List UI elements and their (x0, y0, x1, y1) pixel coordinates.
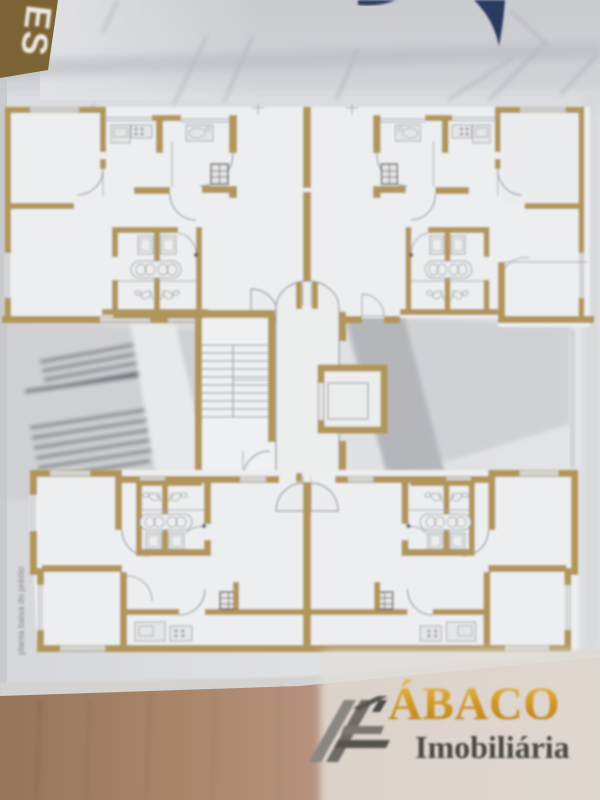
svg-text:ÁBACO: ÁBACO (388, 678, 560, 730)
svg-text:ES: ES (13, 3, 60, 60)
svg-text:planta baixa do prédio: planta baixa do prédio (16, 566, 26, 655)
svg-text:Imobiliária: Imobiliária (415, 729, 570, 765)
